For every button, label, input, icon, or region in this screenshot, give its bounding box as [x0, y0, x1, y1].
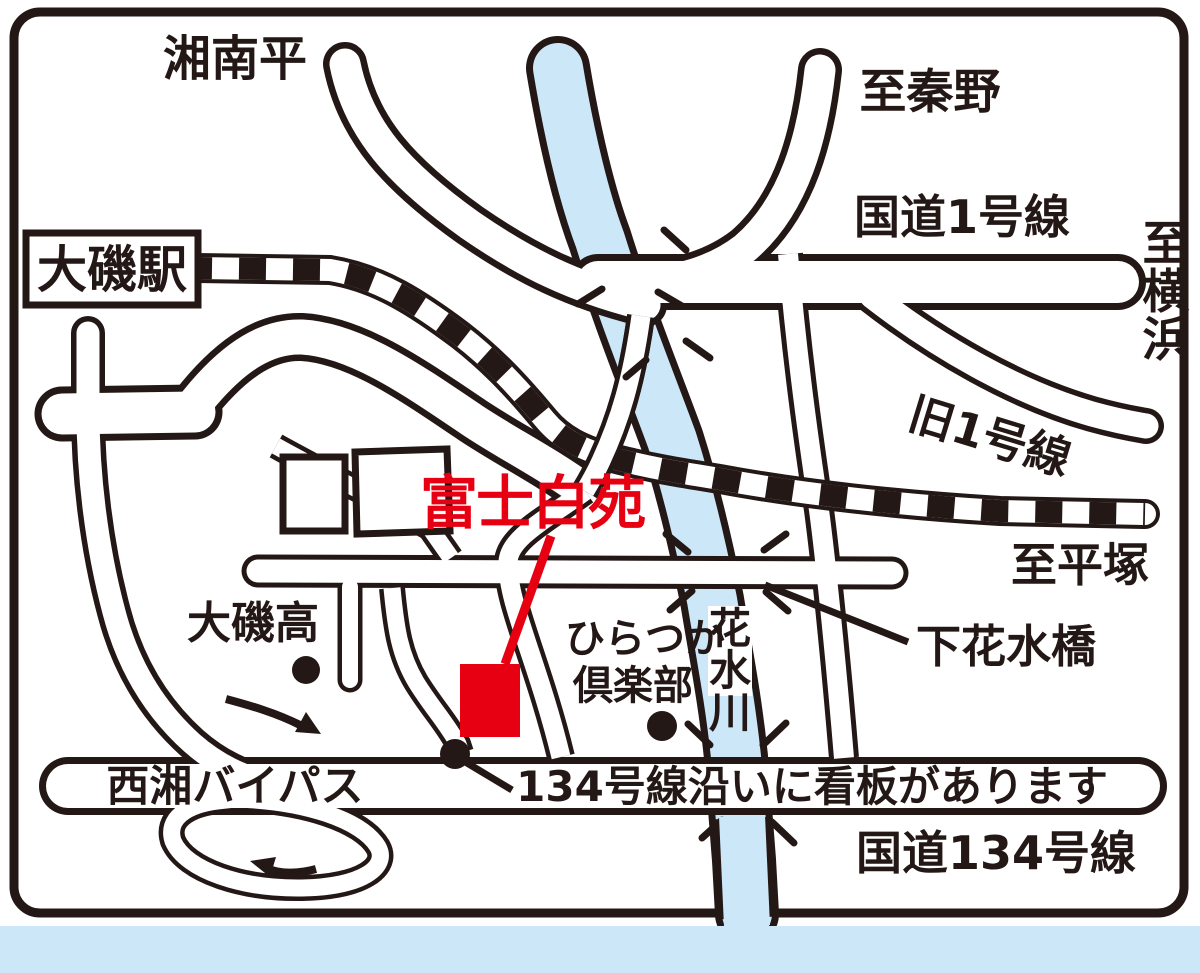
highschool-dot: [292, 656, 320, 684]
station-label: 大磯駅: [37, 241, 187, 299]
hiratsuka-club-dot: [647, 711, 677, 741]
bypass-label: 西湘バイパス: [106, 762, 363, 812]
shonandaira-label: 湘南平: [163, 31, 307, 87]
bridge-label: 下花水橋: [916, 620, 1097, 673]
river-label-char3: 川: [709, 688, 751, 737]
bridge-road: [258, 571, 892, 573]
river-mouth-water: [742, 816, 747, 926]
map-canvas: 湘南平 至秦野 国道1号線 至 横 浜 旧1号線 至平塚 大磯駅 下花水橋 大磯…: [0, 0, 1200, 973]
route-map: 湘南平 至秦野 国道1号線 至 横 浜 旧1号線 至平塚 大磯駅 下花水橋 大磯…: [0, 0, 1200, 973]
yokohama-label-char2: 横: [1143, 265, 1190, 320]
highschool-label: 大磯高: [187, 598, 319, 649]
hiratsuka-club-label-line2: 倶楽部: [572, 663, 693, 709]
yokohama-label-char1: 至: [1143, 217, 1190, 272]
sea: [0, 926, 1200, 973]
route1-label: 国道1号線: [854, 190, 1070, 244]
destination-square: [460, 664, 520, 737]
hadano-label: 至秦野: [860, 65, 1001, 120]
route134-label: 国道134号線: [856, 826, 1136, 880]
block-west: [283, 457, 345, 531]
hiratsuka-club-label-line1: ひらつか: [565, 616, 725, 662]
yokohama-label-char3: 浜: [1143, 313, 1190, 368]
destination-label: 富士白苑: [420, 469, 645, 537]
sign-note-label: 134号線沿いに看板があります: [516, 762, 1108, 811]
river-mouth: [742, 816, 747, 926]
to-hiratsuka-label: 至平塚: [1011, 538, 1149, 592]
